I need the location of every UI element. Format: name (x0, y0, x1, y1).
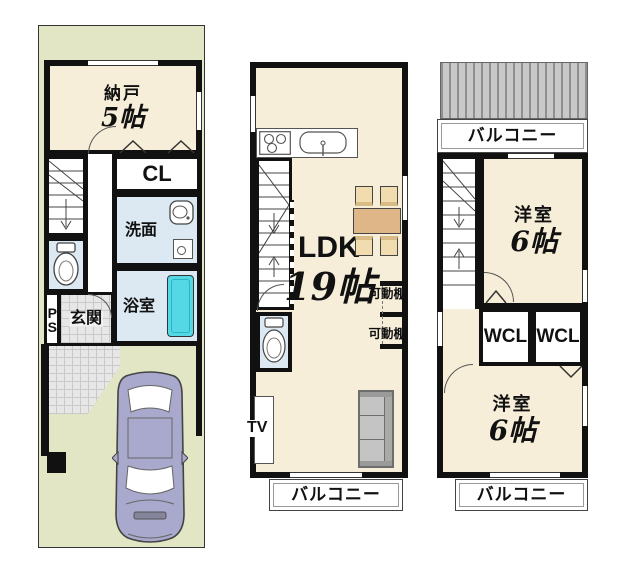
balcony-3f-bottom: バルコニー (455, 479, 588, 511)
balcony-3f-bottom-label: バルコニー (477, 486, 567, 504)
floor-plan-canvas: 納戸 5帖 CL (0, 0, 620, 576)
room-yokushitsu-label: 浴室 (123, 299, 155, 316)
wall-segment (41, 344, 49, 456)
room-west-1-size: 6帖 (510, 228, 557, 256)
balcony-2f: バルコニー (269, 479, 403, 511)
room-west-2: 洋室 6帖 (441, 368, 584, 472)
wcl-2: WCL (532, 308, 584, 366)
chair-icon (380, 186, 398, 206)
sink-icon (169, 200, 194, 225)
door-fold-icon (484, 288, 508, 304)
room-senmen: 洗面 (112, 192, 202, 268)
room-yokushitsu: 浴室 (112, 266, 202, 346)
ldk-label: LDK (298, 232, 360, 264)
ps-duct: PS (44, 292, 60, 346)
wall-segment (196, 344, 202, 436)
sofa-icon (358, 390, 394, 468)
wcl-1-label: WCL (484, 327, 527, 347)
dining-table-icon (353, 208, 401, 234)
chair-icon (355, 236, 373, 256)
wcl-1: WCL (479, 308, 532, 366)
balcony-3f-top: バルコニー (437, 119, 588, 153)
kitchen-sink-icon (299, 131, 349, 157)
stairs-1f (44, 154, 88, 238)
car-icon (112, 366, 188, 546)
room-senmen-label: 洗面 (125, 223, 157, 240)
shelf-wall-stub (380, 344, 408, 349)
stairs-3f (443, 159, 479, 309)
room-cl-label: CL (142, 162, 171, 185)
room-genkan: 玄関 (58, 292, 114, 346)
window (196, 92, 202, 130)
room-west-1-label: 洋室 (514, 206, 554, 225)
toilet-room-1f (44, 236, 88, 294)
room-nando-label: 納戸 (104, 85, 142, 103)
parking-stopper (47, 452, 66, 473)
room-cl: CL (112, 154, 202, 194)
washer-icon (173, 239, 193, 259)
shelf-wall-stub (380, 312, 408, 317)
window (250, 96, 256, 132)
window (490, 472, 560, 478)
toilet-icon (49, 241, 83, 289)
stairs-icon (49, 159, 83, 233)
shelf-wall-stub (380, 281, 408, 286)
ps-label: PS (45, 305, 60, 333)
window (437, 312, 443, 346)
stairs-icon (443, 159, 475, 305)
window (402, 176, 408, 220)
chair-icon (380, 236, 398, 256)
movable-shelf-label-1: 可動棚 (360, 288, 406, 301)
kitchen-counter (256, 128, 358, 158)
movable-shelf-label-2: 可動棚 (360, 328, 406, 341)
tv-label: TV (246, 420, 268, 437)
toilet-room-2f (256, 312, 292, 372)
balcony-3f-top-label: バルコニー (468, 127, 558, 145)
room-west-2-label: 洋室 (493, 395, 533, 414)
closet-fold-icon (118, 138, 198, 154)
toilet-icon (260, 316, 288, 368)
room-west-2-size: 6帖 (489, 417, 536, 445)
bathtub-icon (167, 275, 194, 337)
chair-icon (355, 186, 373, 206)
window (88, 60, 158, 66)
balcony-2f-label: バルコニー (291, 486, 381, 504)
window (290, 472, 362, 478)
hallway-1f (86, 154, 114, 292)
stove-icon (259, 131, 291, 155)
wcl-2-label: WCL (536, 327, 579, 347)
roof-hatch (440, 62, 588, 119)
